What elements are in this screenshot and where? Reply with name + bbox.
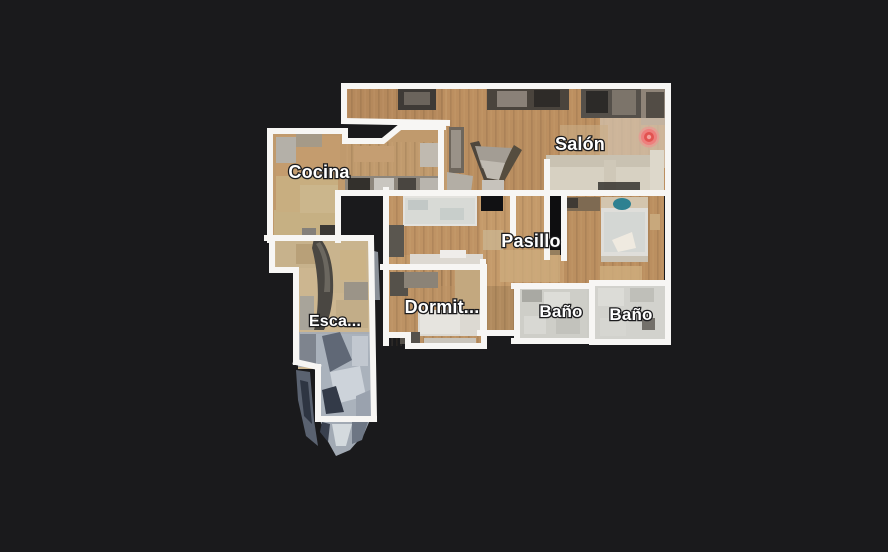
svg-text:Cocina: Cocina — [288, 162, 350, 182]
svg-text:Esca...: Esca... — [309, 313, 361, 330]
svg-text:Salón: Salón — [555, 134, 605, 154]
svg-text:Baño: Baño — [609, 305, 652, 324]
svg-text:Dormit...: Dormit... — [405, 297, 480, 317]
svg-text:Pasillo: Pasillo — [501, 231, 560, 251]
svg-text:Baño: Baño — [539, 302, 582, 321]
